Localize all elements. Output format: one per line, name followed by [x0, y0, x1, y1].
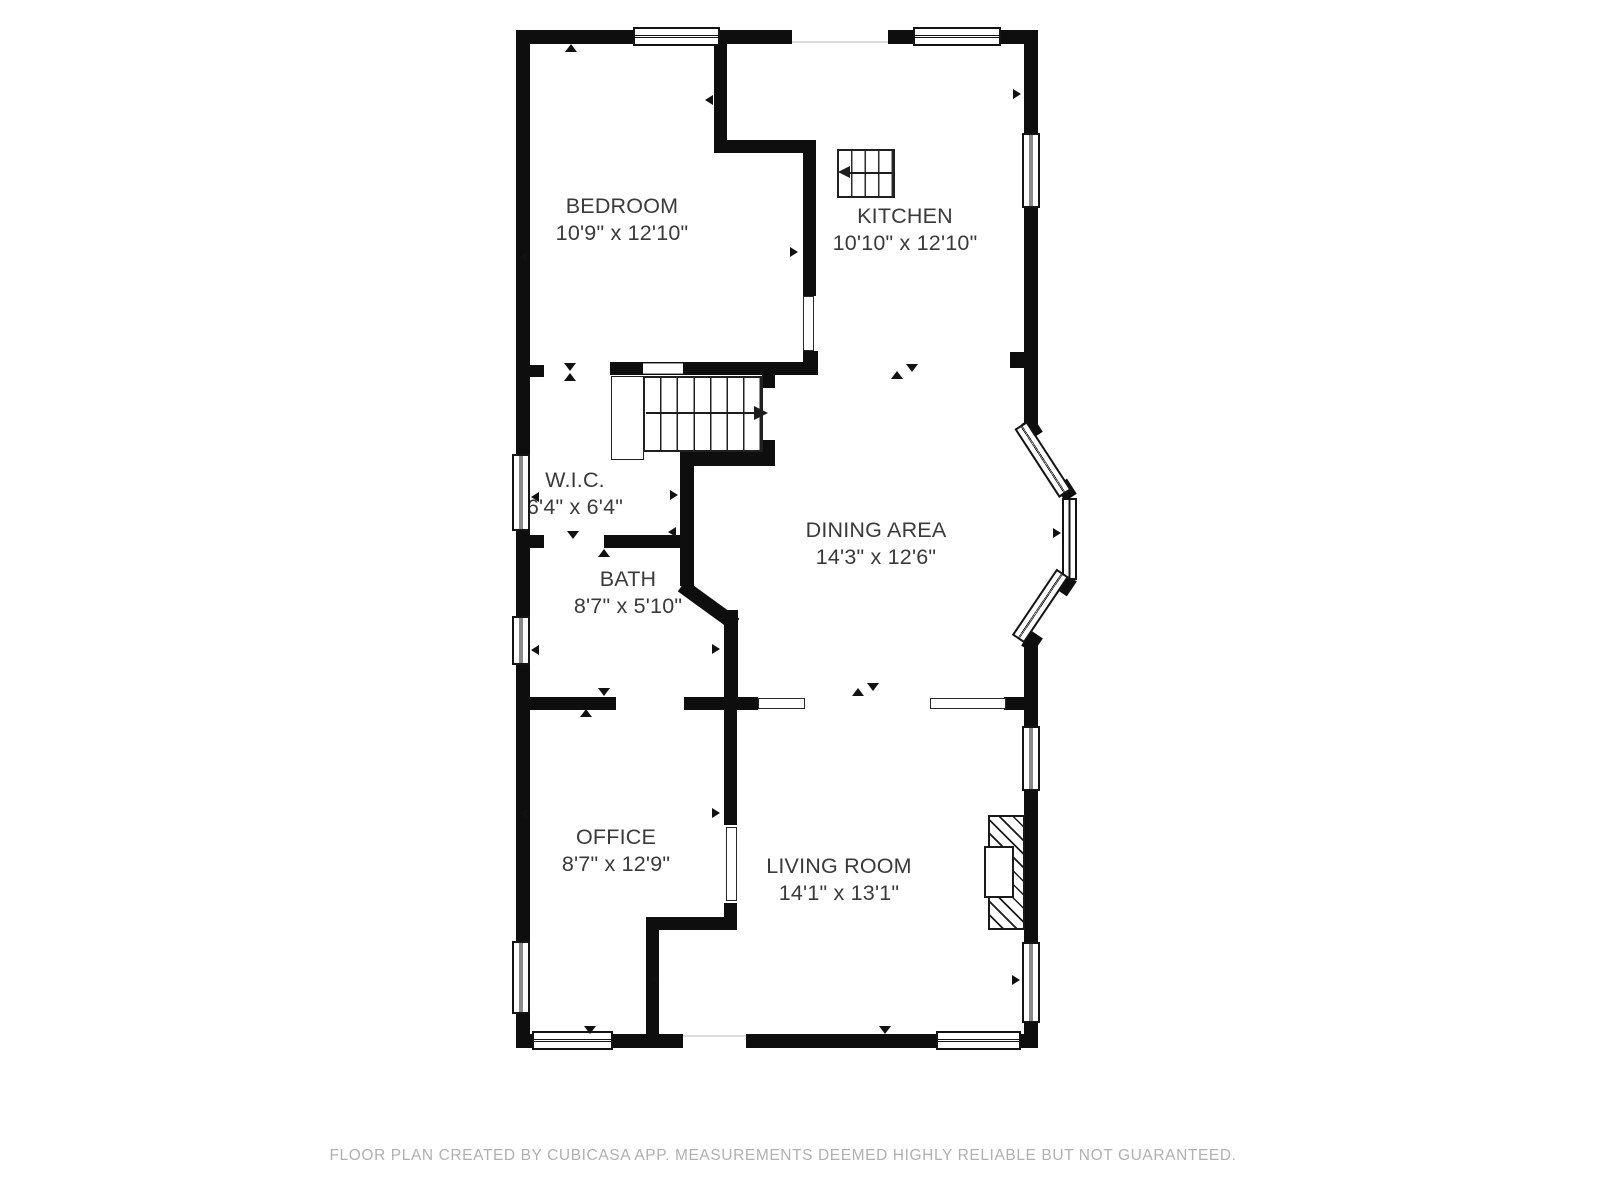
- marker-office-bottom-door-icon: [650, 974, 658, 984]
- wall-hall-stub: [530, 365, 544, 377]
- floor-plan: BEDROOM 10'9" x 12'10" KITCHEN 10'10" x …: [0, 0, 1600, 1200]
- door-leaf-dining-left: [758, 698, 805, 709]
- opening-bedroom-bottom-wall: [643, 363, 683, 374]
- marker-bath-right-icon: [712, 644, 720, 654]
- wall-mid-left: [530, 697, 616, 710]
- threshold-top-entry: [792, 41, 888, 43]
- room-name: KITCHEN: [833, 203, 978, 230]
- wall-bedroom-jog: [714, 140, 816, 153]
- room-dims: 10'10" x 12'10": [833, 230, 978, 257]
- marker-kitchen-dining-a-icon: [891, 371, 903, 379]
- marker-bay-window-icon: [1053, 528, 1061, 538]
- stairs-upper-arrow-head-icon: [838, 166, 850, 178]
- window-bay-middle: [1062, 498, 1077, 580]
- marker-office-door-b-icon: [580, 709, 592, 717]
- door-leaf-dining-right: [930, 698, 1006, 709]
- room-name: BEDROOM: [556, 193, 689, 220]
- room-name: LIVING ROOM: [766, 853, 912, 880]
- room-label-kitchen: KITCHEN 10'10" x 12'10": [833, 203, 978, 257]
- room-dims: 8'7" x 12'9": [562, 851, 670, 878]
- room-label-wic: W.I.C. 6'4" x 6'4": [527, 467, 623, 521]
- wall-wic-bottom-right: [604, 535, 694, 548]
- marker-hall-bowtie-top-icon: [564, 363, 576, 371]
- window-kitchen-right: [1022, 133, 1040, 208]
- stairs-main-arrow-line: [646, 412, 754, 414]
- fireplace-firebox: [984, 846, 1014, 898]
- wall-bath-right: [724, 610, 738, 710]
- marker-dining-living-a-icon: [852, 688, 864, 696]
- wall-mid-right-stub: [1004, 697, 1024, 710]
- marker-bedroom-door-icon: [790, 247, 798, 257]
- window-bay-top: [1014, 421, 1071, 498]
- marker-wic-door-b-icon: [598, 549, 610, 557]
- wall-mid-center: [684, 697, 758, 710]
- wall-office-jog: [646, 917, 737, 930]
- threshold-bottom-entry: [683, 1035, 746, 1037]
- room-name: W.I.C.: [527, 467, 623, 494]
- wall-bedroom-divider-mid: [803, 146, 816, 296]
- stairs-main-treads: [643, 376, 763, 452]
- room-label-bath: BATH 8'7" x 5'10": [574, 566, 682, 620]
- window-kitchen-top: [913, 27, 1001, 46]
- marker-wic-right-icon: [670, 490, 678, 500]
- window-office-left: [512, 941, 530, 1014]
- wall-stair-bottom: [694, 452, 775, 466]
- marker-dining-living-b-icon: [867, 683, 879, 691]
- wall-bedroom-bottom: [610, 362, 818, 375]
- stairs-landing: [611, 376, 644, 460]
- door-leaf-bedroom: [803, 296, 814, 351]
- marker-kitchen-right-icon: [1013, 89, 1021, 99]
- marker-living-bottom-icon: [879, 1026, 891, 1034]
- window-wic-left: [512, 454, 530, 531]
- marker-bedroom-top-icon: [565, 44, 577, 52]
- room-dims: 14'1" x 13'1": [766, 880, 912, 907]
- stairs-main-arrow-head-icon: [754, 406, 768, 420]
- wall-office-right-upper: [724, 710, 737, 825]
- room-label-dining: DINING AREA 14'3" x 12'6": [806, 517, 947, 571]
- footer-disclaimer: FLOOR PLAN CREATED BY CUBICASA APP. MEAS…: [183, 1147, 1383, 1165]
- window-living-right-upper: [1022, 726, 1040, 791]
- marker-hall-bowtie-bottom-icon: [564, 373, 576, 381]
- room-label-bedroom: BEDROOM 10'9" x 12'10": [556, 193, 689, 247]
- wall-wic-right: [680, 452, 694, 586]
- floor-plan-page: { "footer": "FLOOR PLAN CREATED BY CUBIC…: [0, 0, 1600, 1200]
- marker-living-right-icon: [1012, 975, 1020, 985]
- room-dims: 10'9" x 12'10": [556, 220, 689, 247]
- wall-bedroom-divider-top: [714, 44, 727, 144]
- marker-office-bottom-icon: [584, 1026, 596, 1034]
- window-bedroom-top: [633, 27, 720, 46]
- window-bay-bottom: [1012, 569, 1069, 644]
- marker-bath-door-icon: [668, 527, 676, 537]
- marker-wic-window-icon: [531, 492, 539, 502]
- wall-kitchen-notch: [1010, 352, 1026, 368]
- window-office-bottom: [532, 1031, 613, 1050]
- wall-stair-right-top: [762, 366, 775, 388]
- window-living-right-lower: [1022, 942, 1040, 1023]
- stairs-upper-arrow-line: [847, 172, 892, 174]
- door-leaf-office: [726, 827, 737, 901]
- marker-wic-door-a-icon: [567, 531, 579, 539]
- marker-bedroom-left-icon: [519, 252, 527, 262]
- room-label-office: OFFICE 8'7" x 12'9": [562, 824, 670, 878]
- room-dims: 14'3" x 12'6": [806, 544, 947, 571]
- room-dims: 8'7" x 5'10": [574, 593, 682, 620]
- window-bath-left: [512, 616, 530, 665]
- marker-bath-window-icon: [531, 645, 539, 655]
- marker-office-right-door-icon: [712, 808, 720, 818]
- window-living-bottom: [936, 1031, 1021, 1050]
- room-name: DINING AREA: [806, 517, 947, 544]
- wall-wic-bottom-left: [516, 535, 544, 548]
- marker-office-door-a-icon: [598, 688, 610, 696]
- marker-office-left-icon: [519, 809, 527, 819]
- marker-bedroom-divider-icon: [705, 95, 713, 105]
- room-name: OFFICE: [562, 824, 670, 851]
- room-label-living: LIVING ROOM 14'1" x 13'1": [766, 853, 912, 907]
- room-name: BATH: [574, 566, 682, 593]
- outer-wall-right-upper: [1024, 30, 1038, 427]
- room-dims: 6'4" x 6'4": [527, 494, 623, 521]
- marker-kitchen-dining-b-icon: [906, 364, 918, 372]
